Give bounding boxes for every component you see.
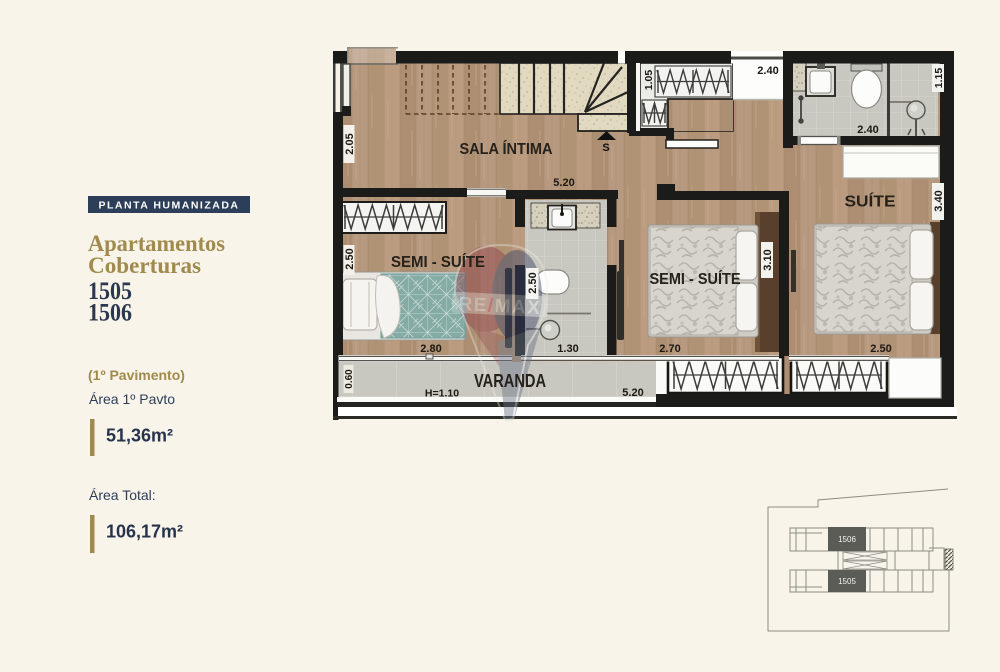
svg-text:1506: 1506 — [88, 300, 132, 327]
svg-text:Coberturas: Coberturas — [88, 253, 201, 278]
svg-text:51,36m²: 51,36m² — [106, 426, 173, 446]
svg-text:Área Total:: Área Total: — [89, 487, 156, 503]
svg-text:PLANTA HUMANIZADA: PLANTA HUMANIZADA — [99, 200, 240, 212]
svg-text:2.50: 2.50 — [870, 343, 891, 355]
svg-text:1.05: 1.05 — [643, 70, 655, 91]
svg-text:106,17m²: 106,17m² — [106, 522, 183, 542]
svg-text:VARANDA: VARANDA — [474, 371, 546, 391]
svg-text:SEMI - SUÍTE: SEMI - SUÍTE — [650, 269, 741, 288]
svg-text:SUÍTE: SUÍTE — [845, 192, 896, 211]
svg-text:2.70: 2.70 — [659, 343, 680, 355]
svg-text:2.50: 2.50 — [527, 272, 539, 293]
svg-text:H=1.10: H=1.10 — [425, 388, 459, 400]
svg-text:5.20: 5.20 — [553, 177, 574, 189]
svg-text:0.60: 0.60 — [344, 369, 355, 389]
svg-text:1.15: 1.15 — [933, 68, 945, 89]
svg-text:2.40: 2.40 — [757, 65, 778, 77]
svg-text:2.80: 2.80 — [420, 343, 441, 355]
svg-text:2.40: 2.40 — [857, 124, 878, 136]
svg-text:5.20: 5.20 — [622, 387, 643, 399]
svg-text:SEMI - SUÍTE: SEMI - SUÍTE — [391, 252, 485, 271]
svg-text:Área 1º Pavto: Área 1º Pavto — [89, 391, 175, 407]
svg-text:SALA ÍNTIMA: SALA ÍNTIMA — [460, 139, 553, 158]
svg-text:1.30: 1.30 — [557, 343, 578, 355]
svg-text:S: S — [602, 142, 609, 154]
svg-text:1505: 1505 — [838, 577, 856, 586]
svg-text:3.10: 3.10 — [762, 249, 774, 270]
svg-text:3.40: 3.40 — [933, 190, 945, 211]
svg-text:2.05: 2.05 — [344, 133, 356, 154]
svg-text:(1º Pavimento): (1º Pavimento) — [88, 367, 185, 383]
svg-text:1506: 1506 — [838, 535, 856, 544]
svg-text:2.50: 2.50 — [344, 248, 356, 269]
